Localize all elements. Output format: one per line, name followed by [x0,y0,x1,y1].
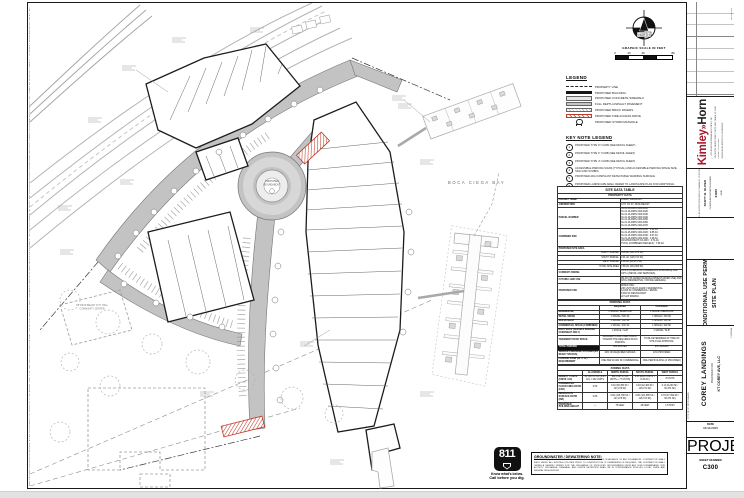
registration-number: 61845 [714,189,718,197]
property-row: PROPOSED USE MIXED USE: 240 UNIT MULTI-F… [558,284,683,300]
legend-label: PROPOSED BRICK PAVERS [595,108,633,112]
firm-block: Kimley»Horn © 2025 KIMLEY-HORN AND ASSOC… [687,97,734,169]
revision-table: REVISIONS [687,2,734,97]
project-number-label: PROJECT NO. [687,438,734,454]
kimley-horn-logo: Kimley»Horn [697,99,709,165]
key-note-number: 4 [566,167,573,174]
key-note-number: 1 [566,144,573,151]
legend-label: PROPERTY LINE [595,85,618,89]
revisions-label: REVISIONS [731,8,733,20]
building-north [146,44,300,148]
legend-symbol [566,86,592,87]
key-note-item: 1 PROPOSED TYPE 'D' CURB (SEE DETAIL SHE… [566,144,684,151]
paper: THIS DOCUMENT, TOGETHER WITH THE CONCEPT… [0,0,744,491]
scale-title: GRAPHIC SCALE IN FEET [604,46,684,50]
roundabout: PROPOSED ROUNDABOUT [238,152,306,220]
sheet-title-line2: SITE PLAN [712,278,718,308]
license-columns: SCALE: AS NOTED DESIGNED BY DRAWN BY CHE… [699,169,701,218]
project-number-block: PROJECT NO. [687,438,734,454]
north-label: NORTH [638,33,650,37]
client-name: KT COREY AVE, LLC [717,356,721,391]
groundwater-note-title: GROUNDWATER / DEWATERING NOTE: [534,455,665,459]
call-811: 811 Know what's below. Call before you d… [487,447,527,480]
site-data-table: SITE DATA TABLE PROPERTY DATA PROJECT NA… [557,186,683,410]
legend-label: PROPOSED CONCRETE SIDEWALK [595,96,644,100]
registration-label: FLORIDA REGISTRATION NUMBER [710,176,712,209]
sheet-number-block: SHEET NUMBER C300 [687,454,734,489]
desk-background [0,491,744,498]
license-block: SCALE: AS NOTED DESIGNED BY DRAWN BY CHE… [687,169,734,218]
key-note-text: PROPOSED ADA COMPLIANT DETECTABLE WARNIN… [575,175,655,182]
key-note-item: 3 PROPOSED TYPE 'A' CURB (SEE DETAIL SHE… [566,160,684,167]
graphic-scale: GRAPHIC SCALE IN FEET 0204080 [604,46,684,59]
sheet-title-line1: CONDITIONAL USE PERMIT [703,260,709,326]
project-name: COREY LANDINGS [701,341,708,406]
key-note-number: 3 [566,160,573,167]
key-note-text: ACCESSIBLE PARKING SIGNS (TYPICAL) AND A… [575,167,684,174]
call-811-line2: Call before you dig. [487,476,527,480]
legend-symbol [566,91,592,94]
city-hall-label-1: ST. PETE BEACH CITY HALL [76,304,109,307]
site-plan-sheet: THIS DOCUMENT, TOGETHER WITH THE CONCEPT… [0,0,744,498]
parking-rows: RESIDENTIAL 1 SPACE / BEDROOM 1 SPACE / … [558,310,683,365]
roundabout-label-2: ROUNDABOUT [263,183,281,186]
parking-row: TRANSIENT DOCK SPACE ADJACENT LAND USES … [558,335,683,345]
key-note-text: PROPOSED TYPE 'A' CURB (SEE DETAIL SHEET… [575,160,635,167]
dock-gangway [398,128,426,146]
marina-pier [431,225,507,386]
zoning-rows: DENSITY / UNITS (UNITS / AC) 30 UNITS / … [558,375,683,410]
date-block: DATE 04/11/2025 [687,422,734,438]
small-dock [372,448,394,488]
groundwater-note: GROUNDWATER / DEWATERING NOTE: THE OWNER… [531,452,668,475]
legend-symbol [566,108,592,112]
seal-area [687,218,734,260]
prepared-for-label: PREPARED FOR [711,363,714,383]
property-row: FUTURE LAND USE PR-MU (PLANNED REDEVELOP… [558,277,683,284]
building-south [306,102,404,432]
water-taxi-dock [423,84,521,139]
zoning-row: DENSITY / UNITS (UNITS / AC) 30 UNITS / … [558,375,683,382]
date-value: 04/11/2025 [687,426,734,430]
key-note-text: PROPOSED TYPE 'D' CURB (SEE DETAIL SHEET… [575,144,635,151]
project-block: CITY OF ST. PETE BEACH FLORIDA COREY LAN… [687,326,734,422]
legend-symbol [566,114,592,118]
legend-title: LEGEND [566,75,587,81]
groundwater-note-body: THE OWNER(S) OF UNDERGROUND UTILITIES SH… [534,459,665,473]
scale-bar [615,55,673,60]
call-811-icon: 811 [494,447,521,471]
key-note-title: KEY NOTE LEGEND [566,135,612,141]
state-label: FLORIDA [731,328,733,337]
north-arrow-icon: NORTH [624,8,664,48]
legend-items: PROPERTY LINE PROPOSED BUILDING PROPOSED… [566,84,684,130]
property-row: COMBINED SIZE 31-31-16-09872-000-0010 : … [558,228,683,246]
city-label: CITY OF ST. PETE BEACH [688,392,690,419]
key-note-item: 4 ACCESSIBLE PARKING SIGNS (TYPICAL) AND… [566,167,684,174]
legend-label: PROPOSED FIRE ACCESS DRIVE [595,114,641,118]
scale-ticks: 0204080 [615,51,673,55]
sheet-number-label: SHEET NUMBER [687,458,734,462]
zoning-row: PROPOSED BUILDING HEIGHT — 75 FEET 48 FE… [558,403,683,410]
firm-address: © 2025 KIMLEY-HORN AND ASSOCIATES, INC.1… [711,106,724,158]
call-811-shield-icon [503,463,511,470]
legend-symbol [566,102,592,106]
sheet-title-block: CONDITIONAL USE PERMIT SITE PLAN [687,260,734,326]
bay-label: BOCA CIEGA BAY [448,180,505,185]
legend-symbol [566,120,592,124]
engineer-name: SCOTT M. OLIVER [703,180,707,206]
city-hall-label-2: COMMUNITY CENTER [79,308,104,311]
north-and-scale: NORTH GRAPHIC SCALE IN FEET 0204080 [598,8,690,62]
key-note-number: 2 [566,152,573,159]
call-811-number: 811 [494,447,521,462]
zoning-row: COMMERCIAL FLOOR AREA RATIO (FAR) 0.55 0… [558,383,683,393]
key-note-text: PROPOSED TYPE 'F' CURB (SEE DETAIL SHEET… [575,152,635,159]
sheet-number-value: C300 [687,465,734,471]
legend-symbol [566,96,592,100]
parking-row: VEHICLE CHARGING STATIONS (EV READY SPAC… [558,350,683,357]
property-rows: PROJECT NAME COREY LANDINGS JURISDICTION… [558,198,683,299]
fire-access-hatch-south [221,416,264,437]
key-note-item: 2 PROPOSED TYPE 'F' CURB (SEE DETAIL SHE… [566,152,684,159]
legend-label: PROPOSED STORM MANHOLE [595,120,638,124]
license-date-word: DATE [721,190,723,195]
key-note-number: 5 [566,175,573,182]
zoning-row: IMPERVIOUS SURFACE RATIO (ISR) 0.85 0.82… [558,393,683,403]
property-row: CURRENT ZONING CCS-1 (CORRIDOR COMMERCIA… [558,269,683,276]
parking-row: BOAT SLIPS (VESSELS MOORED OVERNIGHT ONL… [558,328,683,335]
key-note-item: 5 PROPOSED ADA COMPLIANT DETECTABLE WARN… [566,175,684,182]
parking-row: LOADING ZONE (26' X 12') REQUIREMENT ONE… [558,357,683,364]
title-block: REVISIONS Kimley»Horn © 2025 KIMLEY-HORN… [686,2,734,489]
legend: LEGEND PROPERTY LINE PROPOSED BUILDING [566,66,684,130]
legend-label: PROPOSED BUILDING [595,91,626,95]
legend-label: FULL DEPTH ASPHALT PAVEMENT [595,102,642,106]
property-row: PARCEL NUMBER 31-31-16-09872-000-0010 31… [558,207,683,228]
